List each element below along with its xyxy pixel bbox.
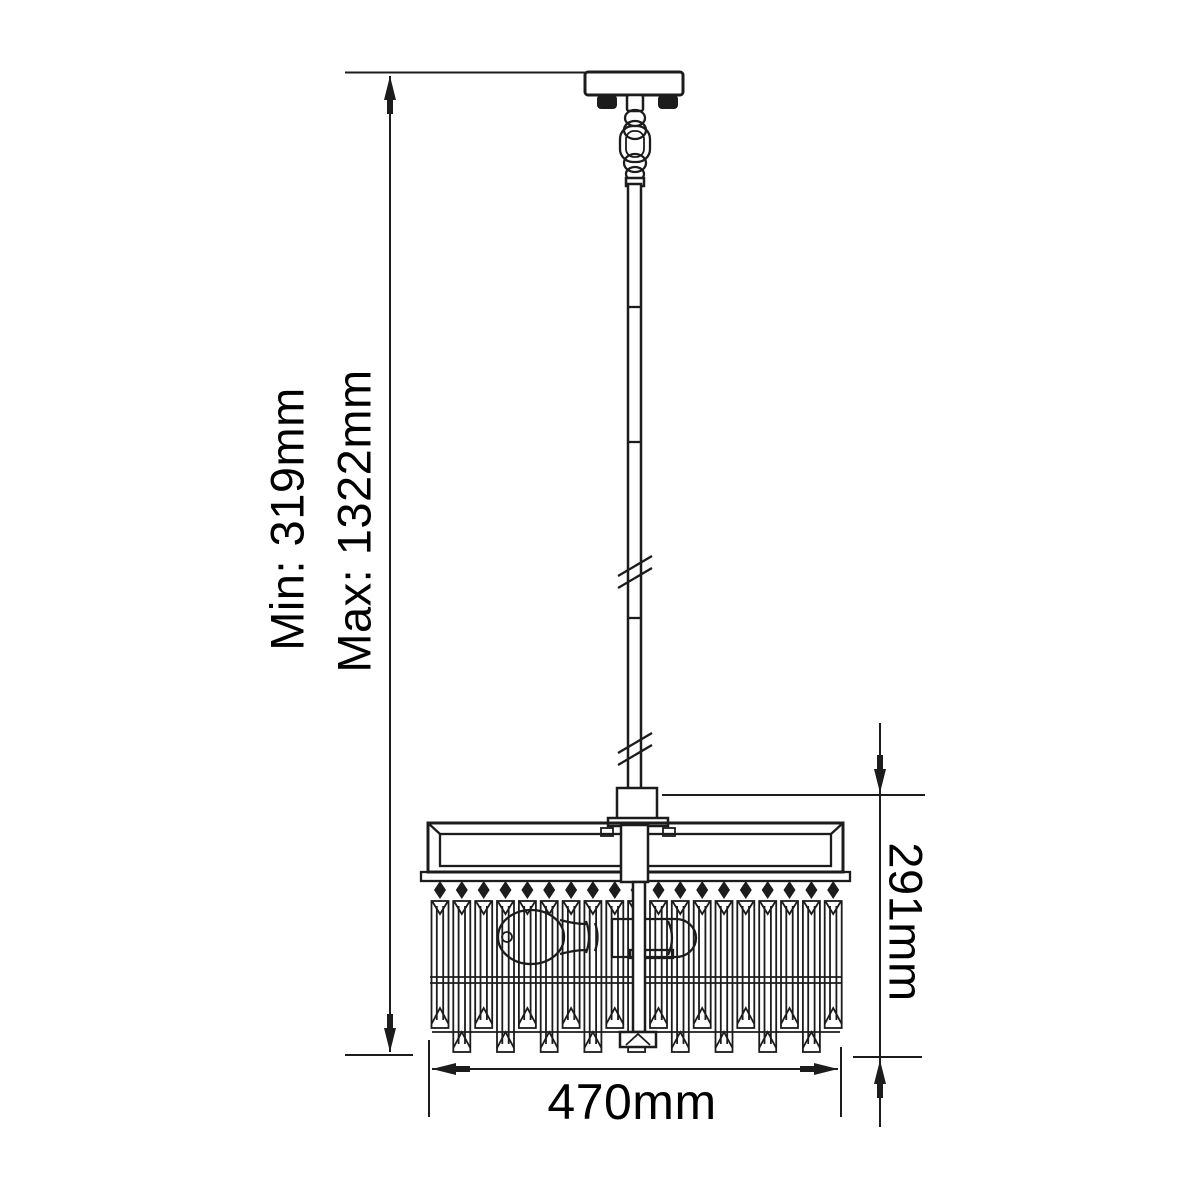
min-drop-label: Min: 319mm	[260, 387, 315, 651]
max-drop-label: Max: 1322mm	[327, 369, 382, 672]
shade-width-label: 470mm	[547, 1073, 716, 1131]
chain-links	[620, 110, 650, 186]
pendant-light-line-art	[0, 0, 1200, 1200]
shade-height-label: 291mm	[879, 842, 934, 1001]
ceiling-canopy	[585, 72, 683, 111]
diagram-canvas: Min: 319mm Max: 1322mm 291mm 470mm	[0, 0, 1200, 1200]
shade-band	[421, 823, 850, 882]
suspension-rod	[601, 184, 675, 836]
